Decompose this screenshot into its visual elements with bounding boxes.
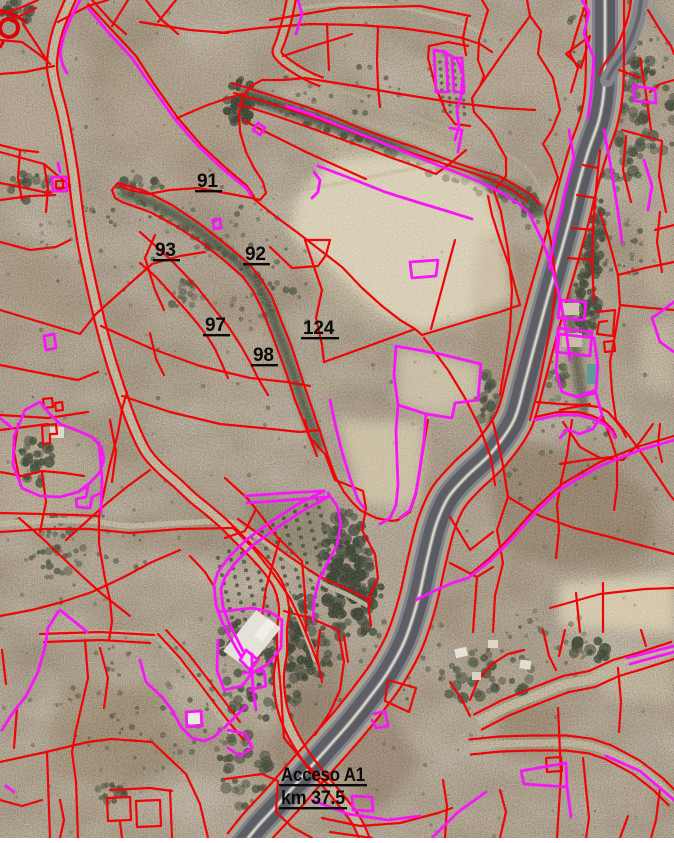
svg-text:93: 93 <box>155 240 176 261</box>
svg-text:Acceso A1: Acceso A1 <box>281 765 366 786</box>
svg-text:91: 91 <box>197 171 218 192</box>
svg-text:124: 124 <box>303 318 335 339</box>
svg-text:97: 97 <box>205 315 226 336</box>
svg-text:98: 98 <box>253 345 274 366</box>
svg-text:92: 92 <box>245 244 266 265</box>
svg-text:km 37.5: km 37.5 <box>281 788 346 809</box>
